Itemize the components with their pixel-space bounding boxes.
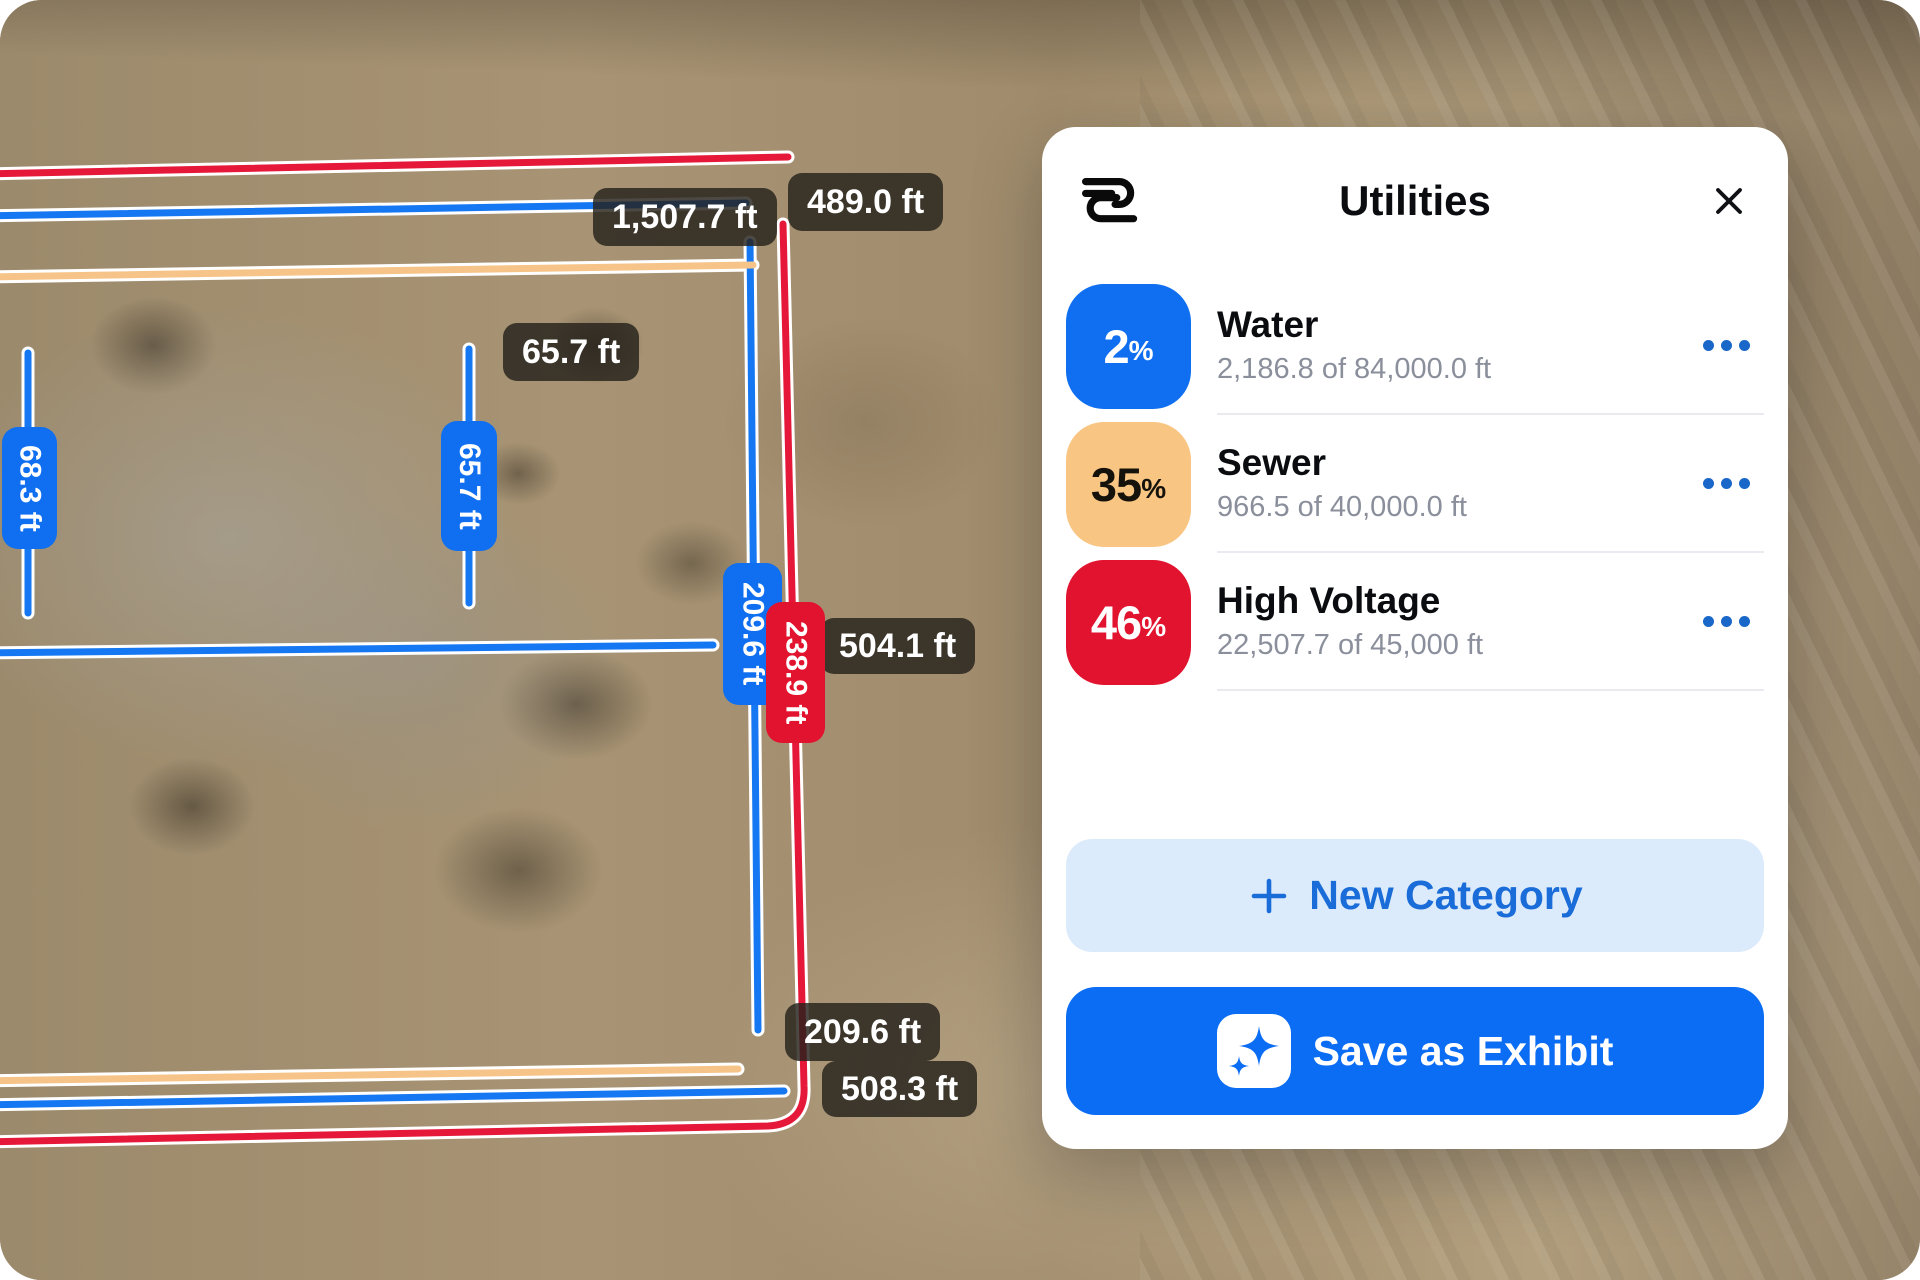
more-options-icon[interactable] [1697,330,1756,361]
app-canvas: 1,507.7 ft 489.0 ft 65.7 ft 504.1 ft 209… [0,0,1920,1280]
category-name: Water [1217,304,1491,346]
more-options-icon[interactable] [1697,468,1756,499]
category-name: High Voltage [1217,580,1483,622]
sewer-percent-badge: 35% [1066,422,1191,547]
percent-value: 2 [1103,319,1128,374]
percent-symbol: % [1141,611,1166,643]
list-item-water[interactable]: 2% Water 2,186.8 of 84,000.0 ft [1066,277,1764,415]
percent-symbol: % [1141,473,1166,505]
measurement-label: 209.6 ft [785,1003,940,1061]
red-line-right-bottom [0,224,804,1142]
close-icon[interactable] [1706,178,1752,224]
save-as-exhibit-button[interactable]: Save as Exhibit [1066,987,1764,1115]
measurement-label: 65.7 ft [503,323,639,381]
more-options-icon[interactable] [1697,606,1756,637]
sparkle-icon [1217,1014,1291,1088]
new-category-button[interactable]: New Category [1066,839,1764,952]
save-as-exhibit-label: Save as Exhibit [1313,1028,1614,1075]
category-progress: 2,186.8 of 84,000.0 ft [1217,353,1491,386]
plus-icon [1247,874,1291,918]
panel-header: Utilities [1066,167,1764,235]
measurement-pill-blue: 68.3 ft [2,427,57,549]
list-item-sewer[interactable]: 35% Sewer 966.5 of 40,000.0 ft [1066,415,1764,553]
measurement-pill-red: 238.9 ft [766,602,825,743]
category-progress: 966.5 of 40,000.0 ft [1217,491,1467,524]
category-progress: 22,507.7 of 45,000 ft [1217,629,1483,662]
utilities-panel: Utilities 2% Water 2,186.8 of 84,000.0 f… [1042,127,1788,1149]
panel-title: Utilities [1066,177,1764,225]
measurement-label: 504.1 ft [820,618,975,674]
new-category-label: New Category [1309,872,1582,919]
category-list: 2% Water 2,186.8 of 84,000.0 ft 35% Sewe… [1066,277,1764,691]
percent-value: 46 [1091,595,1141,650]
list-item-high-voltage[interactable]: 46% High Voltage 22,507.7 of 45,000 ft [1066,553,1764,691]
percent-value: 35 [1091,457,1141,512]
water-percent-badge: 2% [1066,284,1191,409]
measurement-label: 489.0 ft [788,173,943,231]
measurement-label: 508.3 ft [822,1061,977,1117]
measurement-pill-blue: 65.7 ft [441,421,497,551]
category-name: Sewer [1217,442,1467,484]
high-voltage-percent-badge: 46% [1066,560,1191,685]
panel-actions: New Category Save as Exhibit [1066,839,1764,1115]
measurement-label: 1,507.7 ft [593,188,777,246]
percent-symbol: % [1129,335,1154,367]
